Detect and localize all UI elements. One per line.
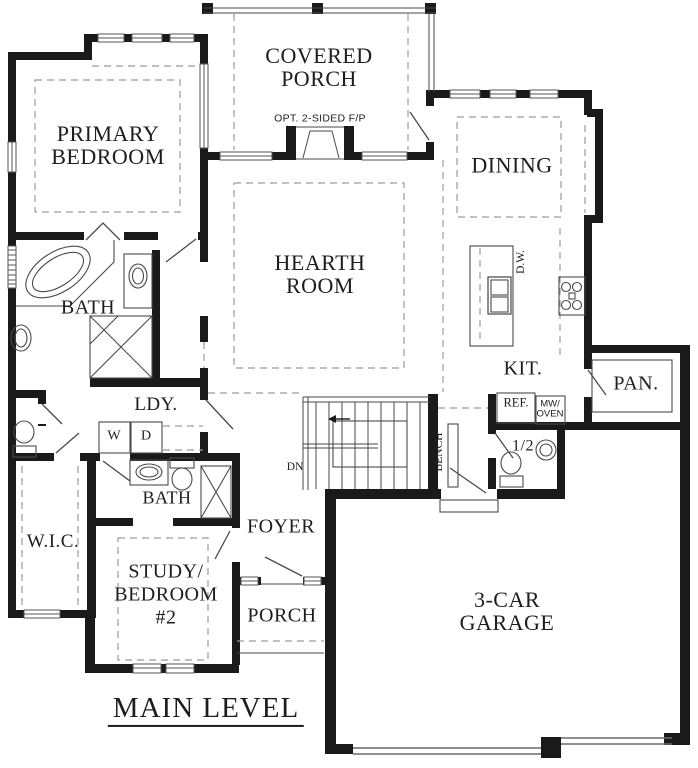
dishwasher-label: D.W. (516, 250, 528, 274)
room-label-hearth-room: HEARTH ROOM (275, 252, 366, 298)
dashed-lines (22, 14, 585, 660)
fireplace-option-note: OPT. 2-SIDED F/P (274, 114, 366, 125)
microwave-oven-label: MW/ OVEN (537, 400, 564, 421)
bench-label: BENCH (434, 433, 446, 472)
bench-seat (448, 424, 458, 487)
room-label-study: STUDY/ BEDROOM #2 (114, 561, 218, 630)
garage-door-sills (353, 738, 672, 754)
toilet-icon (170, 458, 194, 490)
kitchen-island (470, 246, 513, 346)
vanity-sink-icon (124, 254, 152, 308)
stairs-icon (303, 397, 430, 490)
room-label-walk-in-closet: W.I.C. (27, 532, 79, 552)
room-label-bath-2: BATH (142, 489, 191, 508)
refrigerator-label: REF. (503, 397, 528, 410)
round-sink-icon (536, 440, 556, 460)
shower-icon (90, 316, 152, 378)
garage-stoop (440, 500, 498, 512)
cooktop-icon (559, 277, 585, 315)
vanity-sink-icon (130, 460, 168, 485)
toilet-icon (500, 452, 523, 487)
shower-icon (201, 466, 231, 518)
hatched-window (8, 246, 16, 288)
washer-label: W (107, 430, 120, 445)
room-label-garage: 3-CAR GARAGE (460, 589, 555, 635)
room-label-porch: PORCH (247, 606, 316, 627)
room-label-half-bath: 1/2 (512, 439, 534, 456)
room-label-primary-bedroom: PRIMARY BEDROOM (51, 123, 165, 169)
room-label-foyer: FOYER (247, 517, 315, 538)
floor-plan: COVERED PORCH OPT. 2-SIDED F/P PRIMARY B… (0, 0, 698, 768)
room-label-primary-bath: BATH (61, 298, 115, 319)
toilet-icon (13, 421, 36, 457)
doors (42, 112, 606, 576)
page-title: MAIN LEVEL (108, 693, 304, 727)
room-label-laundry: LDY. (134, 395, 177, 415)
room-label-dining: DINING (471, 155, 552, 178)
dryer-label: D (141, 430, 151, 445)
room-label-covered-porch: COVERED PORCH (265, 45, 372, 91)
room-label-kitchen: KIT. (504, 359, 543, 380)
stairs-down-label: DN (287, 462, 304, 474)
room-label-pantry: PAN. (613, 374, 658, 395)
